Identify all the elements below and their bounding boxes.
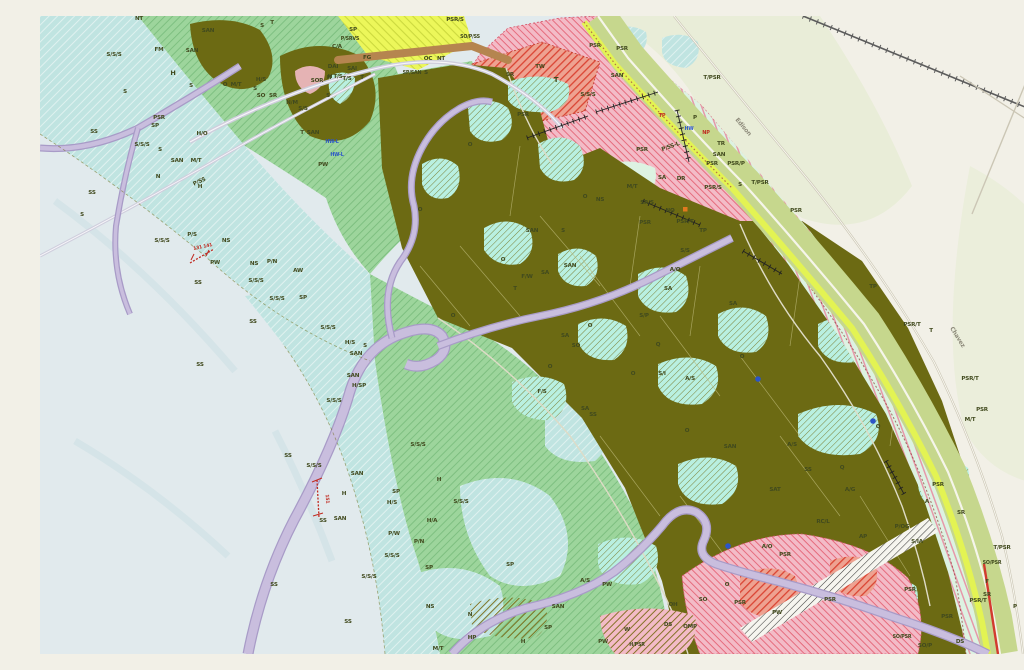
map-class-label: SAN	[171, 158, 184, 164]
map-class-label: TR	[717, 141, 726, 147]
map-class-label: SO	[257, 93, 266, 99]
map-class-label: O	[588, 323, 593, 329]
map-class-label: SAI	[347, 66, 357, 72]
map-class-label: NS	[596, 197, 604, 203]
map-class-label: S/S/S	[248, 278, 263, 284]
map-class-label: SS	[88, 190, 96, 196]
map-class-label: SAT	[769, 487, 781, 493]
map-class-label: DAI	[328, 64, 339, 70]
map-class-label: SR	[957, 510, 966, 516]
map-class-label: S	[260, 23, 264, 29]
map-class-label: PSR/S	[446, 17, 464, 23]
map-class-label: S/S/S	[134, 142, 149, 148]
map-class-label: OC	[424, 56, 433, 62]
map-class-label: SR	[983, 592, 992, 598]
map-class-label: 151	[324, 494, 331, 503]
map-class-label: N	[156, 174, 161, 180]
map-class-label: P/S	[187, 232, 197, 238]
blue-point-marker	[755, 376, 761, 382]
map-class-label: PSR	[790, 208, 803, 214]
map-class-label: HW-L	[330, 152, 343, 158]
map-class-label: P/N	[267, 259, 278, 265]
brown-hatch-overlay	[600, 609, 696, 655]
map-class-label: N/M	[286, 100, 298, 106]
map-class-label: PSR	[517, 112, 530, 118]
map-class-label: T/PSR	[993, 545, 1011, 551]
map-class-label: S/S	[298, 106, 308, 112]
map-class-label: M/T	[231, 82, 242, 88]
map-class-label: SS	[804, 467, 812, 473]
map-class-label: S/S/S	[106, 52, 121, 58]
map-class-label: S	[561, 228, 565, 234]
map-class-label: A/O	[762, 544, 773, 550]
map-class-label: A/G	[845, 487, 856, 493]
map-class-label: TP	[659, 113, 666, 119]
map-canvas[interactable]: NTS/S/SSSSFMHSPSRSPH/OS/S/SSSSSSANSANSTO…	[40, 16, 1024, 654]
map-class-label: M/T	[627, 184, 638, 190]
map-class-label: SO/PSR	[983, 560, 1002, 566]
map-class-label: SP	[544, 625, 552, 631]
blue-point-marker	[725, 543, 731, 549]
map-class-label: S/I	[658, 371, 666, 377]
map-class-label: T	[300, 130, 304, 136]
map-class-label: TP	[699, 228, 707, 234]
map-class-label: H	[170, 69, 175, 77]
map-class-label: SO	[699, 597, 708, 603]
map-class-label: H	[521, 639, 526, 645]
map-class-label: PSR	[904, 587, 917, 593]
map-class-label: SP/SAN	[403, 70, 422, 76]
habitat-classification-map: NTS/S/SSSSFMHSPSRSPH/OS/S/SSSSSSANSANSTO…	[40, 16, 1024, 654]
map-class-label: SR	[269, 93, 278, 99]
map-class-label: S	[738, 182, 742, 188]
map-class-label: SR	[506, 72, 515, 78]
map-class-label: SS	[249, 319, 257, 325]
cyan-patch	[422, 158, 460, 198]
map-class-label: O	[583, 194, 588, 200]
map-class-label: O	[740, 354, 745, 360]
map-class-label: SA	[664, 286, 673, 292]
map-class-label: PSR	[932, 482, 945, 488]
map-class-label: S	[424, 70, 428, 76]
map-class-label: SOR	[311, 78, 324, 84]
map-class-label: H	[342, 491, 347, 497]
map-class-label: F	[985, 579, 989, 585]
map-class-label: N	[468, 612, 473, 618]
map-class-label: O	[685, 428, 690, 434]
map-class-label: PSR	[734, 600, 747, 606]
map-class-label: S/S/S	[320, 325, 335, 331]
map-class-label: O	[501, 257, 506, 263]
map-class-label: PW	[598, 639, 608, 645]
map-class-label: DS	[664, 622, 672, 628]
map-class-label: A/S	[685, 376, 695, 382]
map-class-label: PSR/S	[704, 185, 722, 191]
map-class-label: SS	[196, 362, 204, 368]
map-class-label: S/S/S	[384, 553, 399, 559]
map-class-label: O	[725, 582, 730, 588]
map-class-label: S	[326, 93, 330, 99]
map-class-label: HW	[685, 126, 695, 132]
map-class-label: SS	[194, 280, 202, 286]
map-class-label: S/S/S	[580, 92, 595, 98]
map-class-label: PSR/P	[727, 161, 745, 167]
map-class-label: SR/S	[640, 200, 654, 206]
map-class-label: SS	[344, 619, 352, 625]
map-class-label: S/IA	[911, 539, 924, 545]
map-class-label: PSR	[153, 115, 166, 121]
map-class-label: S/S	[680, 248, 690, 254]
map-class-label: PSR/T	[961, 376, 979, 382]
map-class-label: T	[513, 286, 517, 292]
map-class-label: SA	[729, 301, 738, 307]
map-class-label: SA	[561, 333, 570, 339]
map-class-label: H/PSR	[629, 642, 645, 648]
map-class-label: SAN	[307, 130, 320, 136]
map-class-label: S/P	[639, 313, 649, 319]
map-class-label: SAN	[564, 263, 577, 269]
map-class-label: T	[360, 75, 364, 81]
map-class-label: NT	[437, 56, 445, 62]
map-class-label: DS	[956, 639, 964, 645]
map-class-label: PSR/T	[676, 219, 694, 225]
map-class-label: SS	[319, 518, 327, 524]
map-class-label: PSR	[824, 597, 837, 603]
map-class-label: PW	[318, 162, 328, 168]
map-class-label: AP	[859, 534, 867, 540]
map-class-label: P/SRVS	[341, 36, 360, 42]
map-class-label: FG	[363, 55, 372, 61]
map-class-label: PSR	[779, 552, 792, 558]
map-class-label: SP	[151, 123, 159, 129]
map-class-label: SP	[425, 565, 433, 571]
map-class-label: S	[363, 343, 367, 349]
map-class-label: SAN	[526, 228, 539, 234]
map-class-label: PSR	[706, 161, 719, 167]
map-class-label: NS	[426, 604, 434, 610]
map-class-label: OMP	[683, 624, 697, 630]
map-class-label: S/S/S	[154, 238, 169, 244]
map-class-label: T/PSR	[703, 75, 721, 81]
map-class-label: H	[437, 477, 442, 483]
map-class-label: H	[198, 184, 203, 190]
map-class-label: S	[189, 83, 193, 89]
map-class-label: DR	[677, 176, 686, 182]
map-class-label: S/S/S	[269, 296, 284, 302]
map-class-label: W	[624, 627, 630, 633]
map-class-label: T	[554, 76, 559, 84]
map-class-label: SP	[299, 295, 307, 301]
map-class-label: H	[327, 75, 332, 81]
map-class-label: S/S/S	[326, 398, 341, 404]
map-class-label: SAN	[334, 516, 347, 522]
map-class-label: Q	[656, 342, 661, 348]
map-class-label: H/O	[197, 131, 208, 137]
map-class-label: SAN	[713, 152, 726, 158]
map-class-label: T	[929, 328, 933, 334]
map-class-label: PSR	[976, 407, 989, 413]
map-class-label: S/S/S	[361, 574, 376, 580]
map-class-label: M/T	[965, 417, 976, 423]
map-class-label: TP	[869, 284, 877, 290]
map-class-label: T/S	[342, 76, 351, 82]
map-class-label: AW	[293, 268, 303, 274]
blue-point-marker	[870, 418, 876, 424]
map-class-label: RC/L	[816, 519, 830, 525]
map-class-label: S/S/S	[410, 442, 425, 448]
map-class-label: A/O	[670, 267, 681, 273]
map-class-label: PW	[772, 610, 782, 616]
map-class-label: NS	[250, 261, 258, 267]
map-class-label: H/S	[345, 340, 355, 346]
map-class-label: SO	[572, 343, 581, 349]
map-class-label: PSR	[589, 43, 602, 49]
map-class-label: PW	[602, 582, 612, 588]
map-class-label: P/N	[414, 539, 425, 545]
map-class-label: S/S/S	[453, 499, 468, 505]
map-class-label: OH	[668, 602, 678, 608]
map-class-label: T/S	[333, 74, 342, 80]
map-class-label: FM	[155, 47, 165, 53]
map-class-label: SAN	[724, 444, 737, 450]
map-class-label: NT	[135, 16, 143, 22]
map-class-label: SA	[541, 270, 550, 276]
map-class-label: M/T	[433, 646, 444, 652]
map-class-label: PSR	[616, 46, 629, 52]
map-class-label: NO	[665, 208, 674, 214]
map-class-label: PSR/T	[903, 322, 921, 328]
orange-point-marker	[683, 207, 688, 212]
map-class-label: PSR	[636, 147, 649, 153]
map-class-label: HP	[468, 635, 476, 641]
map-class-label: PSR	[941, 614, 954, 620]
map-class-label: P	[693, 115, 697, 121]
map-class-label: NP	[702, 130, 710, 136]
map-class-label: Q	[840, 465, 845, 471]
map-class-label: S	[158, 147, 162, 153]
map-class-label: SP	[506, 562, 514, 568]
map-class-label: F/W	[521, 274, 532, 280]
map-class-label: SS	[270, 582, 278, 588]
map-class-label: O	[548, 364, 553, 370]
map-class-label: F/S	[537, 389, 546, 395]
map-class-label: SO/P	[918, 643, 932, 649]
map-class-label: O	[468, 142, 473, 148]
map-class-label: SP	[392, 489, 400, 495]
map-class-label: SAN	[347, 373, 360, 379]
map-class-label: SAN	[351, 471, 364, 477]
map-class-label: SO/PSR	[893, 634, 912, 640]
map-class-label: SP	[349, 27, 357, 33]
map-class-label: SS	[284, 453, 292, 459]
map-class-label: P/OG	[895, 524, 910, 530]
map-class-label: S	[80, 212, 84, 218]
map-class-label: TW	[535, 64, 545, 70]
map-class-label: SAN	[350, 351, 363, 357]
map-class-label: S	[123, 89, 127, 95]
map-class-label: SA	[658, 175, 667, 181]
map-class-label: H/SP	[352, 383, 366, 389]
map-class-label: HW-L	[325, 139, 338, 145]
map-class-label: PSR	[639, 220, 652, 226]
map-class-label: H/A	[427, 518, 438, 524]
map-class-label: H/S	[387, 500, 397, 506]
map-class-label: O	[631, 371, 636, 377]
cyan-patch	[468, 101, 512, 142]
map-class-label: T/PSR	[751, 180, 769, 186]
map-class-label: SS	[90, 129, 98, 135]
map-class-label: Q	[876, 424, 881, 430]
map-class-label: A/S	[787, 442, 797, 448]
map-class-label: O	[223, 82, 228, 88]
map-class-label: SS	[589, 412, 597, 418]
map-class-label: SAN	[202, 28, 215, 34]
map-class-label: A/S	[580, 578, 590, 584]
map-class-label: SAN	[611, 73, 624, 79]
map-class-label: H/S	[256, 77, 266, 83]
map-class-label: O	[451, 313, 456, 319]
map-class-label: SAN	[186, 48, 199, 54]
map-class-label: PW	[210, 260, 220, 266]
map-class-label: NS	[222, 238, 230, 244]
map-class-label: PSR/T	[969, 598, 987, 604]
map-class-label: SAN	[552, 604, 565, 610]
map-class-label: P/W	[388, 531, 400, 537]
map-class-label: S/S/S	[306, 463, 321, 469]
map-class-label: SO/P/SS	[460, 34, 481, 40]
map-class-label: M/T	[191, 158, 202, 164]
map-class-label: S	[253, 86, 257, 92]
map-class-label: C/A	[332, 44, 343, 50]
map-class-label: O	[418, 207, 423, 213]
map-class-label: P	[1013, 604, 1017, 610]
map-class-label: T	[270, 20, 274, 26]
